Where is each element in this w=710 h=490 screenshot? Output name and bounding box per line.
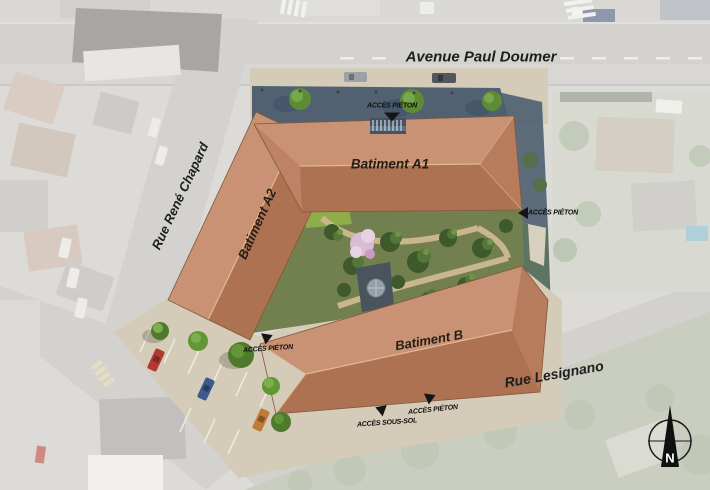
street-label-avenue-paul-doumer: Avenue Paul Doumer [406, 49, 557, 66]
access-label-pieton-east: ACCÈS PIÉTON [528, 210, 578, 217]
building-label-a1: Batiment A1 [351, 157, 429, 172]
site-plan-canvas: Avenue Paul Doumer Rue René Chapard Rue … [0, 0, 710, 490]
site-render [0, 0, 710, 490]
dome-structure [356, 262, 394, 312]
east-path [528, 224, 546, 266]
compass-north-label: N [665, 451, 674, 466]
access-arrow-down-icon [384, 113, 400, 122]
access-arrow-left-icon [518, 207, 528, 219]
access-label-pieton-top: ACCÈS PIÉTON [367, 103, 417, 110]
